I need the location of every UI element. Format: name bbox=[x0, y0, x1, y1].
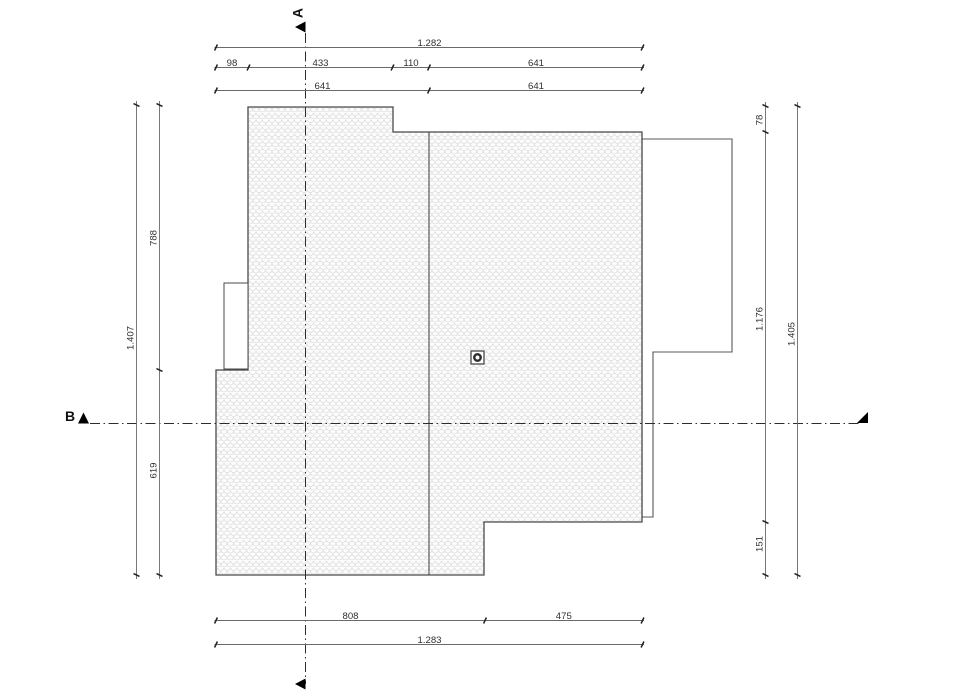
svg-text:1.405: 1.405 bbox=[787, 322, 798, 346]
svg-text:98: 98 bbox=[227, 58, 238, 69]
svg-text:808: 808 bbox=[342, 611, 358, 622]
svg-text:619: 619 bbox=[149, 462, 160, 478]
svg-text:641: 641 bbox=[528, 81, 544, 92]
svg-text:788: 788 bbox=[149, 230, 160, 246]
svg-text:151: 151 bbox=[755, 536, 766, 552]
svg-text:110: 110 bbox=[403, 58, 418, 69]
svg-text:1.282: 1.282 bbox=[417, 38, 441, 49]
svg-text:1.283: 1.283 bbox=[417, 635, 441, 646]
svg-text:78: 78 bbox=[755, 115, 766, 126]
svg-text:433: 433 bbox=[312, 58, 328, 69]
svg-text:1.176: 1.176 bbox=[755, 307, 766, 331]
svg-text:641: 641 bbox=[528, 58, 544, 69]
svg-text:B: B bbox=[65, 408, 75, 424]
svg-text:1.407: 1.407 bbox=[126, 326, 137, 350]
svg-text:A: A bbox=[290, 8, 306, 18]
svg-text:475: 475 bbox=[556, 611, 572, 622]
svg-text:641: 641 bbox=[314, 81, 330, 92]
